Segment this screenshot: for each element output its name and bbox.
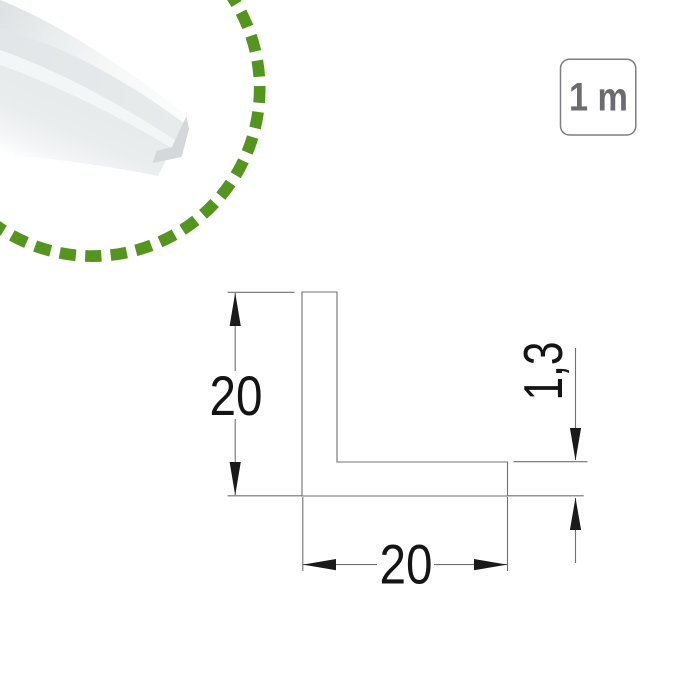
svg-text:20: 20: [210, 364, 263, 427]
svg-text:1 m: 1 m: [569, 76, 628, 120]
svg-text:1,3: 1,3: [512, 342, 574, 401]
svg-text:20: 20: [380, 533, 433, 596]
